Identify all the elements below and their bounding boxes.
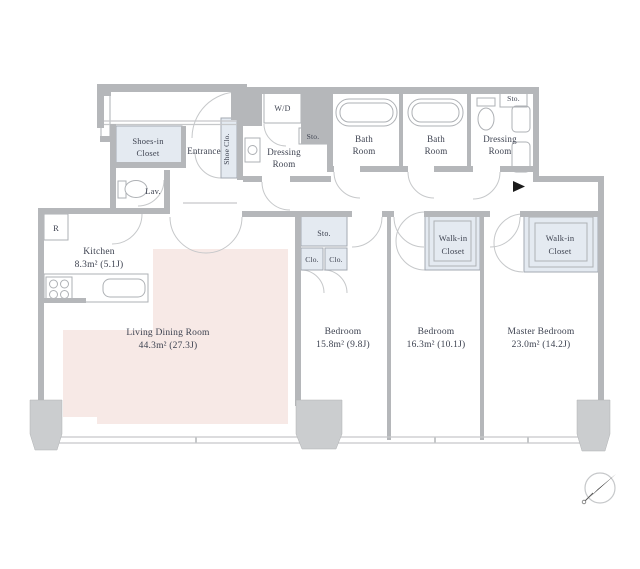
kitchen-counter [44,274,148,302]
entry-arrow-icon [513,181,525,192]
toilet-lav-bowl [125,181,147,198]
bedroom2-area: 16.3m² (10.1J) [407,339,466,350]
bath-room1-label-line2: Room [353,146,376,156]
floor-plan-page: Shoes-in Closet Entrance Shoe Clo. W/D S… [0,0,640,569]
bath-room2-label-line2: Room [425,146,448,156]
toilet-dressing2-bowl [478,108,494,130]
walk-in-closet1-label-line1: Walk-in [439,233,468,243]
shoes-in-closet-label-line1: Shoes-in [132,136,164,146]
master-bedroom-label: Master Bedroom [508,327,575,337]
master-bedroom-area: 23.0m² (14.2J) [512,339,571,350]
bedroom2-label: Bedroom [418,327,455,337]
storage-top-right-label: Sto. [507,94,520,103]
kitchen-label: Kitchen [83,247,115,257]
column-right [577,400,610,451]
sink-dressing1 [245,138,260,162]
walk-in-closet2-label-line1: Walk-in [546,233,575,243]
living-dining-area: 44.3m² (27.3J) [139,340,198,351]
bath-room1-label-line1: Bath [355,134,373,144]
dressing-room2-label-line2: Room [489,146,512,156]
column-middle [296,400,342,449]
toilet-dressing2-tank [477,98,495,106]
bedroom1-area: 15.8m² (9.8J) [316,339,370,350]
dressing-room1-label-line2: Room [273,159,296,169]
shoes-in-closet-label-line2: Closet [137,148,160,158]
refrigerator-label: R [53,223,59,233]
closet1-label: Clo. [305,255,319,264]
closet2-label: Clo. [329,255,343,264]
kitchen-area: 8.3m² (5.1J) [75,259,124,270]
bath-room2-label-line1: Bath [427,134,445,144]
storage-hall-label: Sto. [307,132,320,141]
shoe-closet-label: Shoe Clo. [222,133,231,164]
bedroom1-label: Bedroom [325,327,362,337]
storage-bedroom1-label: Sto. [317,229,330,238]
walk-in-closet2-label-line2: Closet [549,246,572,256]
sink-dressing2-a [512,106,530,132]
floor-plan-drawing: Shoes-in Closet Entrance Shoe Clo. W/D S… [0,0,640,569]
compass-icon [582,473,616,504]
living-dining-label: Living Dining Room [126,328,210,338]
column-left [30,400,62,450]
washer-dryer-label: W/D [274,104,290,113]
walk-in-closet1-label-line2: Closet [442,246,465,256]
lavatory-label: Lav. [145,186,161,196]
dressing-room2-label-line1: Dressing [483,134,517,144]
dressing-room1-label-line1: Dressing [267,147,301,157]
entrance-label: Entrance [187,146,221,156]
